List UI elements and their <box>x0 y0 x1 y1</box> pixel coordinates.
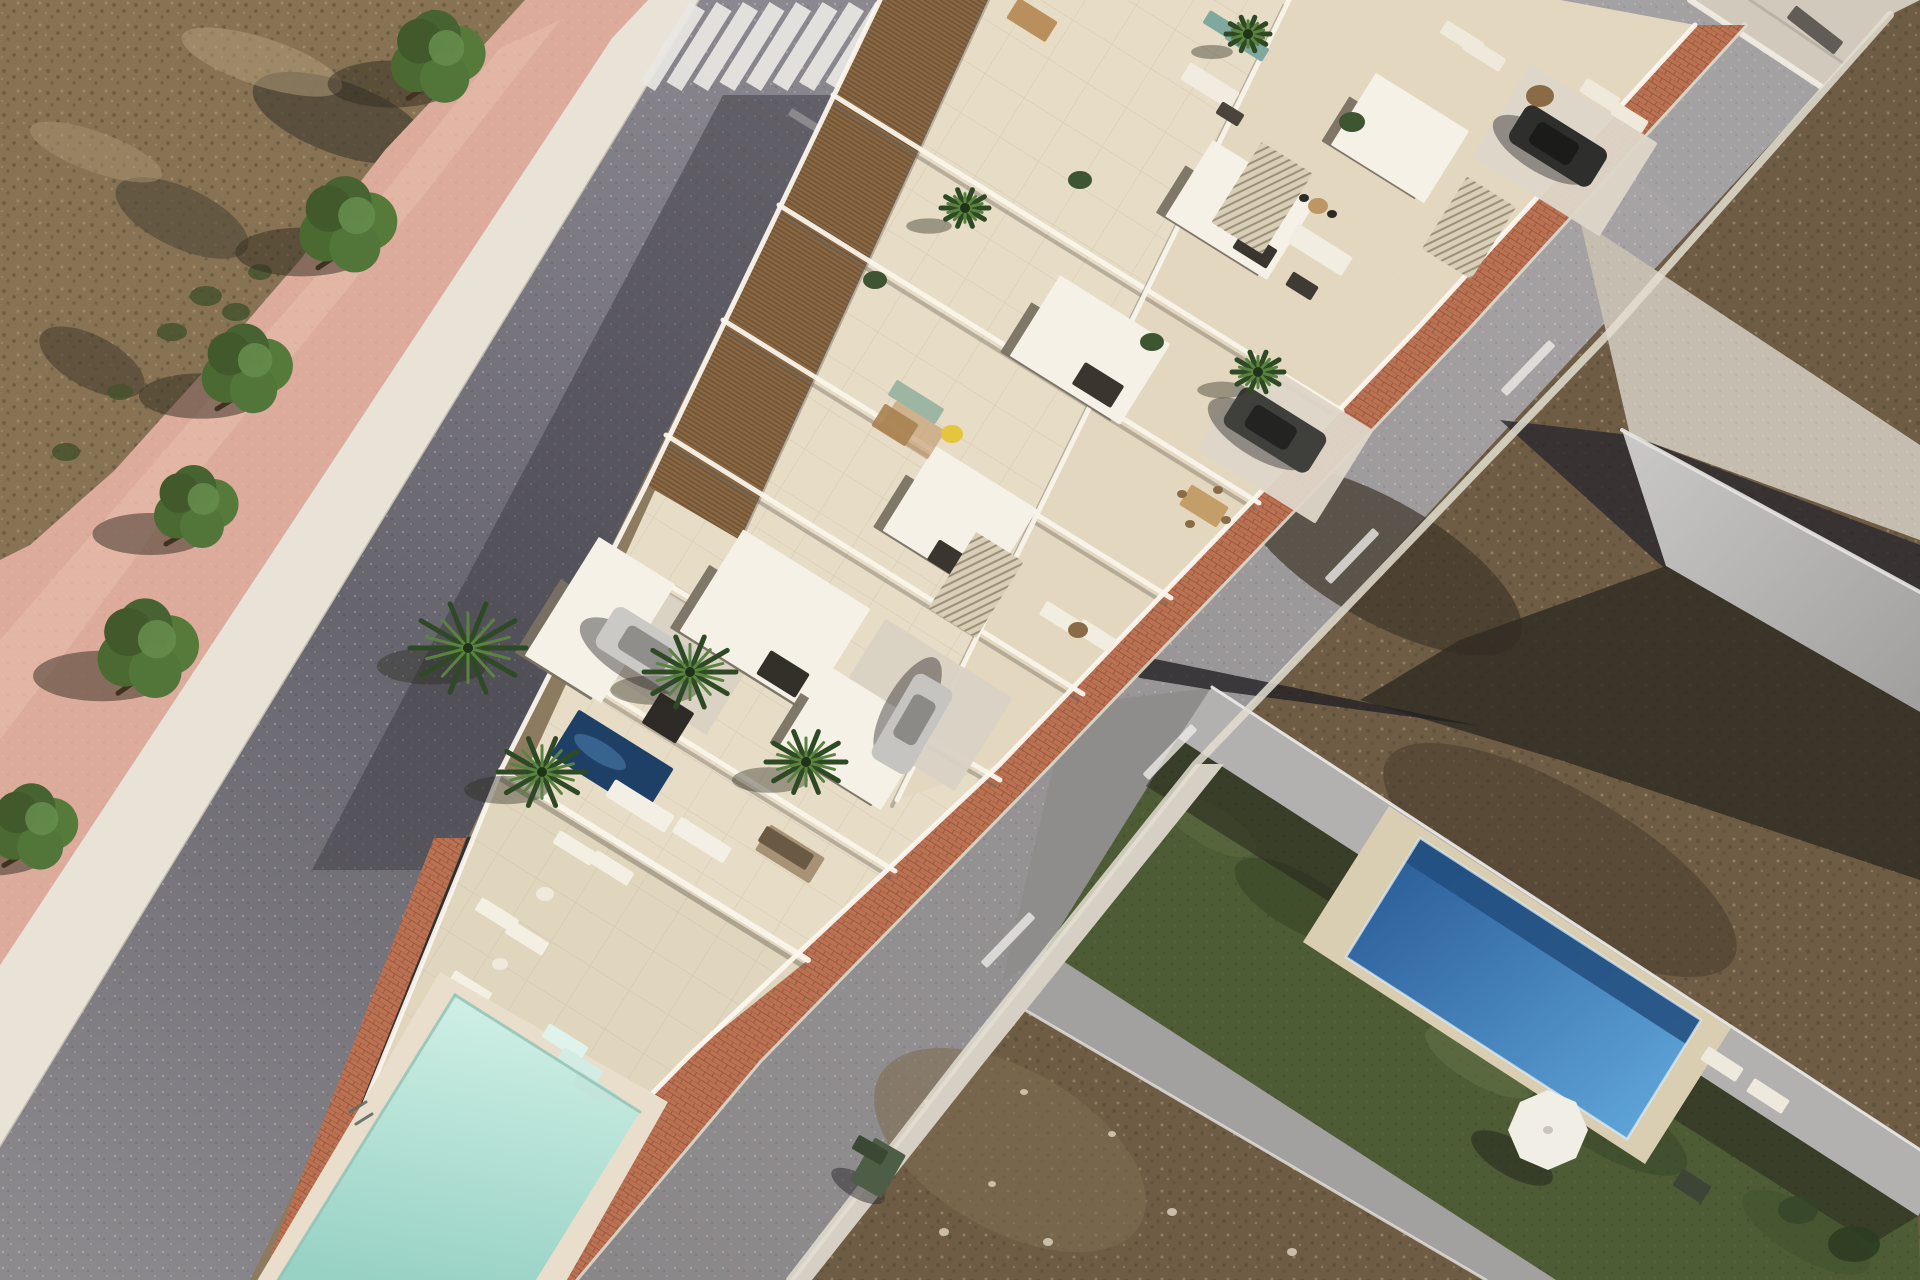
stone <box>939 1228 949 1236</box>
aerial-render-canvas <box>0 0 1920 1280</box>
palm-tree-crown <box>1253 367 1263 377</box>
umbrella-center <box>1543 1126 1553 1134</box>
dining-chair <box>1185 520 1195 528</box>
terrace-plant <box>1068 171 1092 189</box>
palm-tree-crown <box>960 203 970 213</box>
street-tree-highlight <box>138 620 176 658</box>
dining-chair <box>1213 486 1223 494</box>
street-tree-highlight <box>238 343 273 378</box>
aerial-render-photo <box>0 0 1920 1280</box>
bistro-chair <box>1299 194 1309 202</box>
stone <box>1020 1089 1028 1095</box>
dining-chair <box>1221 516 1231 524</box>
round-table <box>1526 85 1554 107</box>
grass-tuft <box>222 303 250 321</box>
terrace-plant <box>1140 333 1164 351</box>
yellow-beanbag <box>941 425 963 443</box>
stone <box>988 1181 996 1187</box>
terrace-plant <box>863 271 887 289</box>
bistro-chair <box>1327 210 1337 218</box>
deck-side-table <box>492 958 508 970</box>
palm-tree-crown <box>537 767 547 777</box>
palm-tree-crown <box>801 757 811 767</box>
deck-side-table <box>536 887 554 901</box>
coffee-table <box>1068 622 1088 638</box>
street-tree-highlight <box>188 483 220 515</box>
street-tree-highlight <box>428 30 464 66</box>
grass-tuft <box>157 323 187 341</box>
dining-chair <box>1177 490 1187 498</box>
terrace-plant <box>1339 112 1365 132</box>
grass-tuft <box>52 443 80 461</box>
villa-bush <box>1828 1226 1880 1262</box>
street-tree-highlight <box>338 197 375 234</box>
stone <box>1108 1131 1116 1137</box>
grass-tuft <box>190 286 222 306</box>
street-tree-highlight <box>25 802 58 835</box>
stone <box>1043 1238 1053 1246</box>
palm-tree-crown <box>1243 29 1253 39</box>
palm-tree-crown <box>685 667 695 677</box>
palm-tree-shadow <box>1191 45 1233 59</box>
palm-tree-crown <box>463 643 473 653</box>
bistro-table <box>1308 198 1328 214</box>
grass-tuft <box>107 384 133 400</box>
stone <box>1167 1208 1177 1216</box>
villa-bush <box>1778 1196 1818 1224</box>
stone <box>1287 1248 1297 1256</box>
